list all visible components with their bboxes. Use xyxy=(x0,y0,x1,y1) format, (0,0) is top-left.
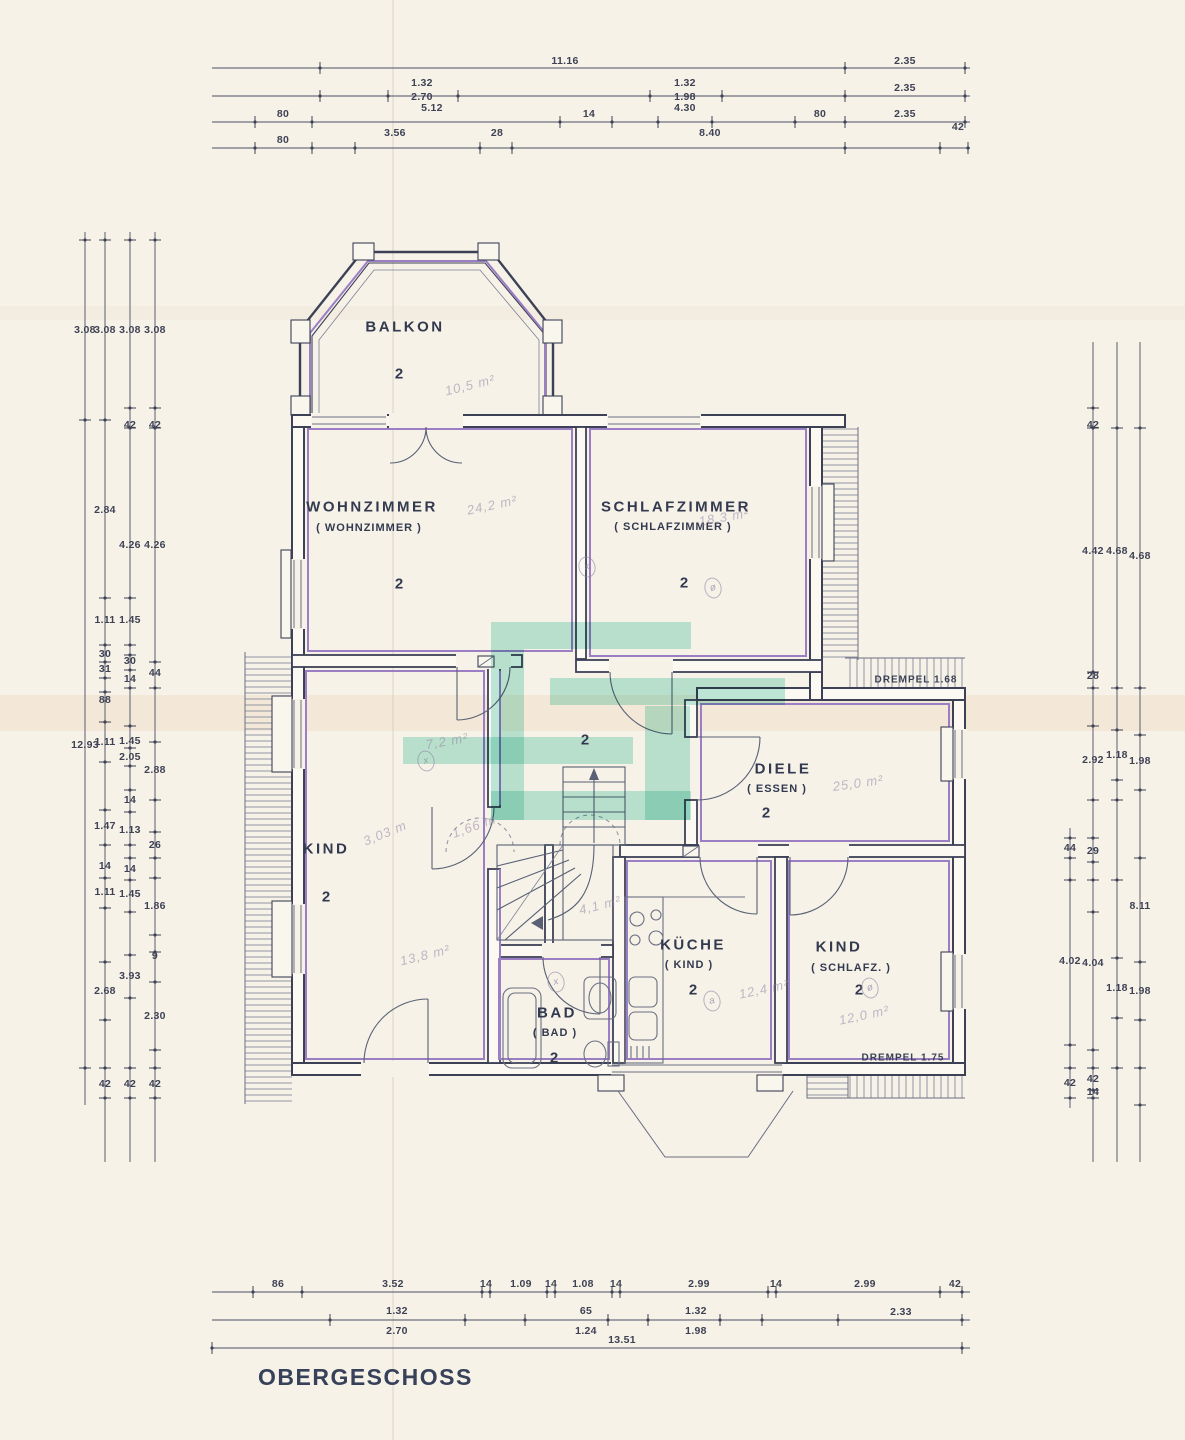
dimension-label: 8.40 xyxy=(699,127,721,139)
dimension-label: 80 xyxy=(814,108,826,120)
dimension-label: 42 xyxy=(149,419,161,431)
dimension-label: 42 xyxy=(149,1078,161,1090)
dimension-label: 1.11 xyxy=(94,736,115,748)
pencil-annotation: 3,03 m xyxy=(361,817,409,848)
dimension-label: 1.32 xyxy=(411,77,433,89)
dimension-label: 42 xyxy=(1087,1073,1099,1085)
room-number-bad: 2 xyxy=(550,1050,558,1067)
dimension-label: 4.02 xyxy=(1059,955,1081,967)
pencil-annotation: 12,0 m² xyxy=(837,1002,890,1027)
room-label-kind-schlafz: KIND xyxy=(816,939,863,956)
annotation-layer: 11.162.351.322.701.321.982.35805.12144.3… xyxy=(0,0,1185,1440)
dimension-label: 13.51 xyxy=(608,1334,636,1346)
dimension-label: 44 xyxy=(1064,842,1076,854)
pencil-annotation: 24,2 m² xyxy=(465,492,518,517)
dimension-label: 42 xyxy=(99,1078,111,1090)
room-label-diele: DIELE xyxy=(755,761,812,778)
dimension-label: 4.26 xyxy=(144,539,166,551)
dimension-label: 2.70 xyxy=(386,1325,408,1337)
dimension-label: 80 xyxy=(277,108,289,120)
dimension-label: 30 xyxy=(124,655,136,667)
dimension-label: 2.30 xyxy=(144,1010,166,1022)
pencil-circled-mark: x xyxy=(415,749,437,773)
dimension-label: 4.30 xyxy=(674,102,696,114)
room-sublabel-bad: ( BAD ) xyxy=(533,1027,577,1039)
dimension-label: 80 xyxy=(277,134,289,146)
pencil-circled-mark: x xyxy=(576,555,598,579)
pencil-circled-mark: x xyxy=(545,970,567,994)
dimension-label: 9 xyxy=(152,950,158,962)
dimension-label: 4.26 xyxy=(119,539,141,551)
dimension-label: 1.98 xyxy=(685,1325,707,1337)
pencil-annotation: 13,8 m² xyxy=(398,942,451,969)
dimension-label: 4.68 xyxy=(1129,550,1151,562)
dimension-label: 1.11 xyxy=(94,614,115,626)
room-number-balkon: 2 xyxy=(395,366,403,383)
dimension-label: 2.92 xyxy=(1082,754,1104,766)
dimension-label: 65 xyxy=(580,1305,592,1317)
dimension-label: 5.12 xyxy=(421,102,443,114)
dimension-label: 88 xyxy=(99,694,111,706)
dimension-label: 1.18 xyxy=(1106,749,1128,761)
dimension-label: 26 xyxy=(149,839,161,851)
room-number-kind: 2 xyxy=(322,889,330,906)
room-label-kind: KIND xyxy=(303,841,350,858)
dimension-label: 14 xyxy=(480,1278,492,1290)
dimension-label: 14 xyxy=(770,1278,782,1290)
dimension-label: 1.11 xyxy=(94,886,115,898)
dimension-label: 1.09 xyxy=(510,1278,532,1290)
dimension-label: 1.08 xyxy=(572,1278,594,1290)
pencil-annotation: 4,1 m² xyxy=(577,893,622,918)
room-label-kueche: KÜCHE xyxy=(660,937,726,954)
dimension-label: 42 xyxy=(124,419,136,431)
pencil-circled-mark: a xyxy=(701,989,723,1013)
dimension-label: 1.45 xyxy=(119,888,141,900)
dimension-label: 42 xyxy=(1087,419,1099,431)
room-sublabel-kind-schlafz: ( SCHLAFZ. ) xyxy=(811,962,891,974)
dimension-label: 14 xyxy=(99,860,111,872)
room-label-balkon: BALKON xyxy=(365,319,444,336)
dimension-label: 3.56 xyxy=(384,127,406,139)
room-number-flur: 2 xyxy=(581,732,589,749)
pencil-annotation: 7,2 m² xyxy=(425,730,470,752)
floor-plan-page: 11.162.351.322.701.321.982.35805.12144.3… xyxy=(0,0,1185,1440)
dimension-label: 14 xyxy=(124,794,136,806)
page-title: OBERGESCHOSS xyxy=(258,1364,473,1391)
pencil-annotation: 25,0 m² xyxy=(832,772,885,794)
dimension-label: 2.68 xyxy=(94,985,116,997)
dimension-label: 3.08 xyxy=(144,324,166,336)
dimension-label: 1.98 xyxy=(1129,985,1151,997)
dimension-label: 8.11 xyxy=(1129,900,1150,912)
dimension-label: 28 xyxy=(1087,670,1099,682)
pencil-circled-mark: ø xyxy=(702,576,724,600)
room-sublabel-kueche: ( KIND ) xyxy=(665,959,713,971)
room-number-schlafzimmer: 2 xyxy=(680,575,688,592)
room-number-kueche: 2 xyxy=(689,982,697,999)
dimension-label: 1.45 xyxy=(119,735,141,747)
dimension-label: 4.04 xyxy=(1082,957,1104,969)
dimension-label: 2.35 xyxy=(894,108,916,120)
pencil-annotation: 12,4 m² xyxy=(737,976,790,1001)
dimension-label: 44 xyxy=(149,667,161,679)
pencil-annotation: 1,66 m xyxy=(450,811,498,841)
dimension-label: 1.24 xyxy=(575,1325,597,1337)
dimension-label: 1.32 xyxy=(685,1305,707,1317)
room-number-diele: 2 xyxy=(762,805,770,822)
dimension-label: 14 xyxy=(583,108,595,120)
dimension-label: 1.47 xyxy=(94,820,116,832)
dimension-label: 4.68 xyxy=(1106,545,1128,557)
dimension-label: 1.98 xyxy=(1129,755,1151,767)
dimension-label: 2.88 xyxy=(144,764,166,776)
dimension-label: 2.84 xyxy=(94,504,116,516)
room-label-wohnzimmer: WOHNZIMMER xyxy=(306,499,438,516)
drempel-note: DREMPEL 1.68 xyxy=(875,675,958,686)
dimension-label: 2.35 xyxy=(894,55,916,67)
dimension-label: 2.35 xyxy=(894,82,916,94)
dimension-label: 2.05 xyxy=(119,751,141,763)
dimension-label: 30 xyxy=(99,648,111,660)
dimension-label: 3.93 xyxy=(119,970,141,982)
pencil-annotation: 10,5 m² xyxy=(443,372,496,399)
dimension-label: 4.42 xyxy=(1082,545,1104,557)
dimension-label: 2.99 xyxy=(688,1278,710,1290)
dimension-label: 1.18 xyxy=(1106,982,1128,994)
room-sublabel-diele: ( ESSEN ) xyxy=(747,783,807,795)
dimension-label: 1.32 xyxy=(674,77,696,89)
dimension-label: 1.13 xyxy=(119,824,141,836)
dimension-label: 86 xyxy=(272,1278,284,1290)
dimension-label: 42 xyxy=(949,1278,961,1290)
dimension-label: 14 xyxy=(124,673,136,685)
dimension-label: 42 xyxy=(1064,1077,1076,1089)
dimension-label: 31 xyxy=(99,663,111,675)
room-label-bad: BAD xyxy=(537,1005,577,1022)
dimension-label: 1.32 xyxy=(386,1305,408,1317)
dimension-label: 29 xyxy=(1087,845,1099,857)
dimension-label: 11.16 xyxy=(551,55,578,67)
room-number-wohnzimmer: 2 xyxy=(395,576,403,593)
dimension-label: 1.45 xyxy=(119,614,141,626)
dimension-label: 14 xyxy=(1087,1086,1099,1098)
dimension-label: 42 xyxy=(124,1078,136,1090)
dimension-label: 1.86 xyxy=(144,900,166,912)
dimension-label: 28 xyxy=(491,127,503,139)
room-sublabel-wohnzimmer: ( WOHNZIMMER ) xyxy=(316,522,422,534)
dimension-label: 42 xyxy=(952,121,964,133)
dimension-label: 3.08 xyxy=(74,324,96,336)
dimension-label: 14 xyxy=(610,1278,622,1290)
dimension-label: 2.33 xyxy=(890,1306,912,1318)
dimension-label: 3.52 xyxy=(382,1278,404,1290)
dimension-label: 2.99 xyxy=(854,1278,876,1290)
dimension-label: 14 xyxy=(545,1278,557,1290)
dimension-label: 3.08 xyxy=(94,324,116,336)
dimension-label: 3.08 xyxy=(119,324,141,336)
drempel-note: DREMPEL 1.75 xyxy=(862,1053,945,1064)
dimension-label: 14 xyxy=(124,863,136,875)
